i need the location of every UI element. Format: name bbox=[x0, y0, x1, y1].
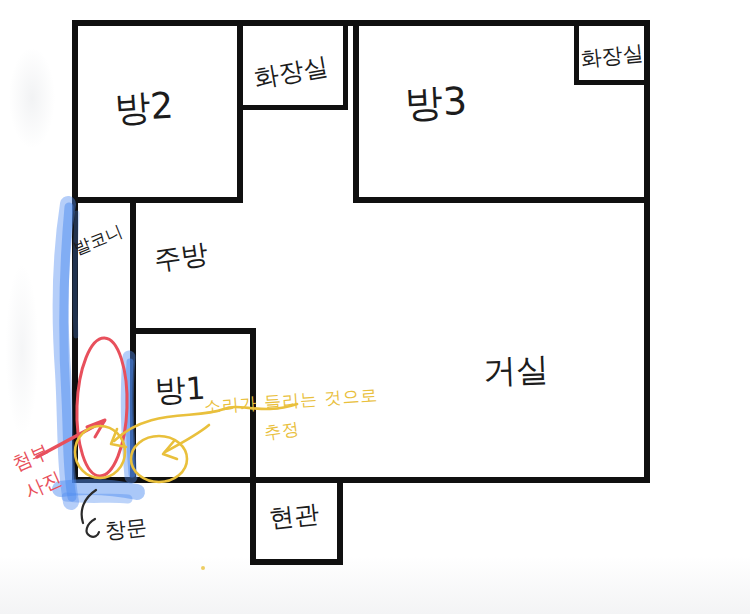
scan-smudge bbox=[0, 556, 750, 614]
blue-highlight-bottom-smear-core bbox=[66, 497, 128, 499]
scan-smudge bbox=[0, 235, 44, 465]
attached-photo-note-line1: 첨부 bbox=[7, 436, 54, 479]
blue-highlight-left-wall bbox=[61, 204, 71, 502]
window-arrow-curve bbox=[82, 490, 96, 523]
room2-walls bbox=[72, 20, 243, 203]
blue-highlight-left-wall-core bbox=[64, 207, 72, 497]
scan-smudge bbox=[0, 28, 64, 168]
yellow-speck bbox=[201, 566, 205, 570]
bathroom-corner-walls bbox=[574, 20, 650, 85]
room1-walls bbox=[130, 328, 256, 483]
window-arrow-hook bbox=[87, 519, 99, 537]
entrance-walls bbox=[250, 483, 343, 565]
attached-photo-note-line2: 사진 bbox=[20, 463, 67, 506]
blue-highlight-bottom-smear bbox=[60, 487, 137, 492]
window-label: 창문 bbox=[104, 513, 149, 545]
attached-photo-note: 첨부 사진 bbox=[7, 436, 66, 507]
bathroom-top-walls bbox=[238, 20, 348, 110]
floor-plan-canvas: 방2 화장실 방3 화장실 발코니 주방 방1 거실 현관 창문 첨부 사진 소… bbox=[0, 0, 750, 614]
